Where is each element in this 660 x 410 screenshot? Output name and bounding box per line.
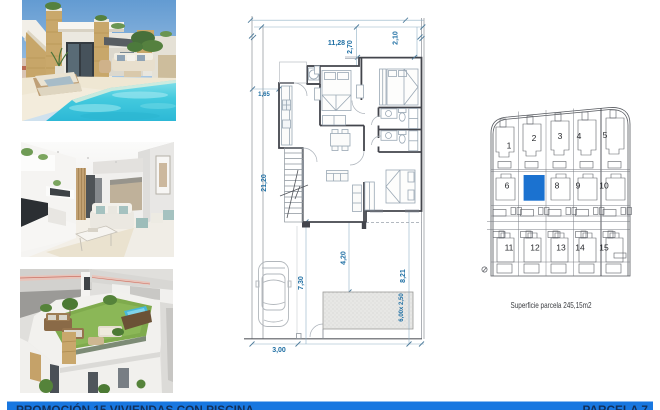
svg-text:2: 2: [532, 133, 537, 143]
svg-text:Superficie parcela 245,15m2: Superficie parcela 245,15m2: [511, 300, 592, 310]
svg-text:21,20: 21,20: [261, 174, 268, 192]
svg-text:15: 15: [599, 243, 609, 253]
svg-text:8,21: 8,21: [400, 269, 407, 283]
svg-text:14: 14: [575, 243, 585, 253]
svg-text:9: 9: [576, 181, 581, 191]
svg-text:11,28: 11,28: [328, 40, 345, 47]
svg-text:PARCELA 7: PARCELA 7: [582, 403, 648, 410]
svg-text:12: 12: [530, 243, 540, 253]
svg-text:8: 8: [555, 181, 560, 191]
svg-text:11: 11: [505, 243, 514, 253]
svg-text:7,30: 7,30: [298, 276, 305, 290]
svg-text:3: 3: [558, 131, 563, 141]
svg-text:2,10: 2,10: [393, 31, 400, 45]
svg-text:2,70: 2,70: [347, 40, 354, 54]
svg-text:5: 5: [603, 130, 608, 140]
svg-text:3,00: 3,00: [272, 347, 286, 354]
svg-text:13: 13: [556, 243, 566, 253]
svg-text:1: 1: [507, 141, 512, 151]
svg-text:10: 10: [599, 181, 609, 191]
svg-text:PROMOCIÓN 15 VIVIENDAS CON PIS: PROMOCIÓN 15 VIVIENDAS CON PISCINA: [16, 403, 254, 410]
svg-text:4: 4: [577, 131, 582, 141]
svg-text:6,00x 2,50: 6,00x 2,50: [399, 293, 405, 322]
svg-text:4,20: 4,20: [341, 251, 348, 265]
svg-text:6: 6: [505, 181, 510, 191]
svg-text:1,65: 1,65: [258, 92, 270, 98]
